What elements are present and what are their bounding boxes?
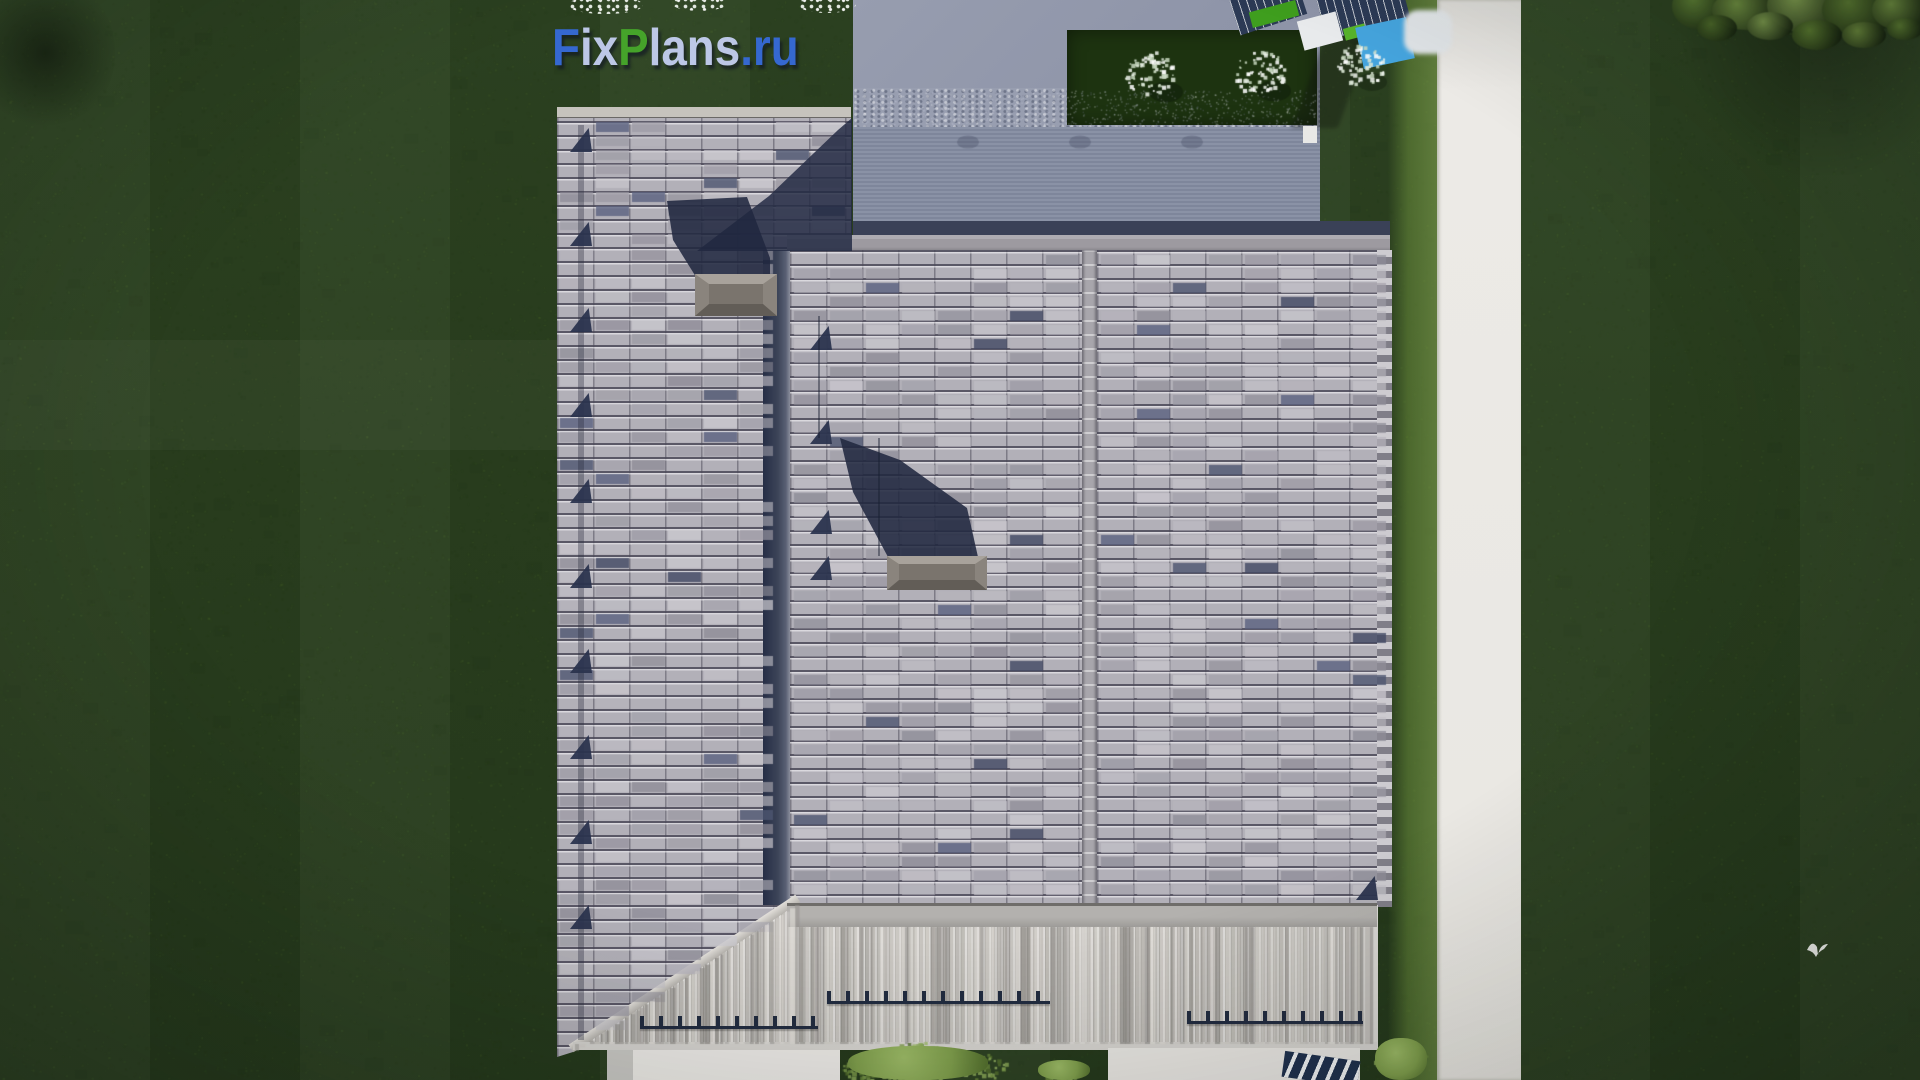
tree-leaf-clump [1887, 18, 1920, 40]
tree-leaf-clump [1697, 15, 1737, 41]
tree-leaf-clump [1747, 12, 1793, 40]
logo-segment: lans [649, 19, 741, 77]
watermark-logo: FixPlans.ru [552, 18, 799, 78]
vent-rod-shadow [818, 316, 820, 438]
tree-leaf-clump [1792, 20, 1842, 50]
logo-segment: .ru [740, 19, 798, 77]
shrub [1375, 1038, 1427, 1080]
chimney-cap [695, 274, 777, 316]
shrub [848, 1046, 988, 1080]
tree-leaf-clump [1842, 22, 1886, 48]
logo-segment: P [618, 19, 649, 77]
snow-rail [827, 991, 1050, 1004]
bird-icon [1804, 936, 1832, 962]
walkway-bottom [633, 1050, 840, 1080]
chimney-cap [887, 556, 987, 590]
aerial-site-view: FixPlans.ru [0, 0, 1920, 1080]
logo-segment: F [552, 19, 580, 77]
snow-rail [640, 1016, 818, 1029]
shrub [1038, 1060, 1090, 1080]
snow-rail [1187, 1011, 1363, 1024]
vent-rod-shadow [878, 438, 880, 556]
logo-segment: ix [580, 19, 618, 77]
ground-pad [607, 1050, 635, 1080]
